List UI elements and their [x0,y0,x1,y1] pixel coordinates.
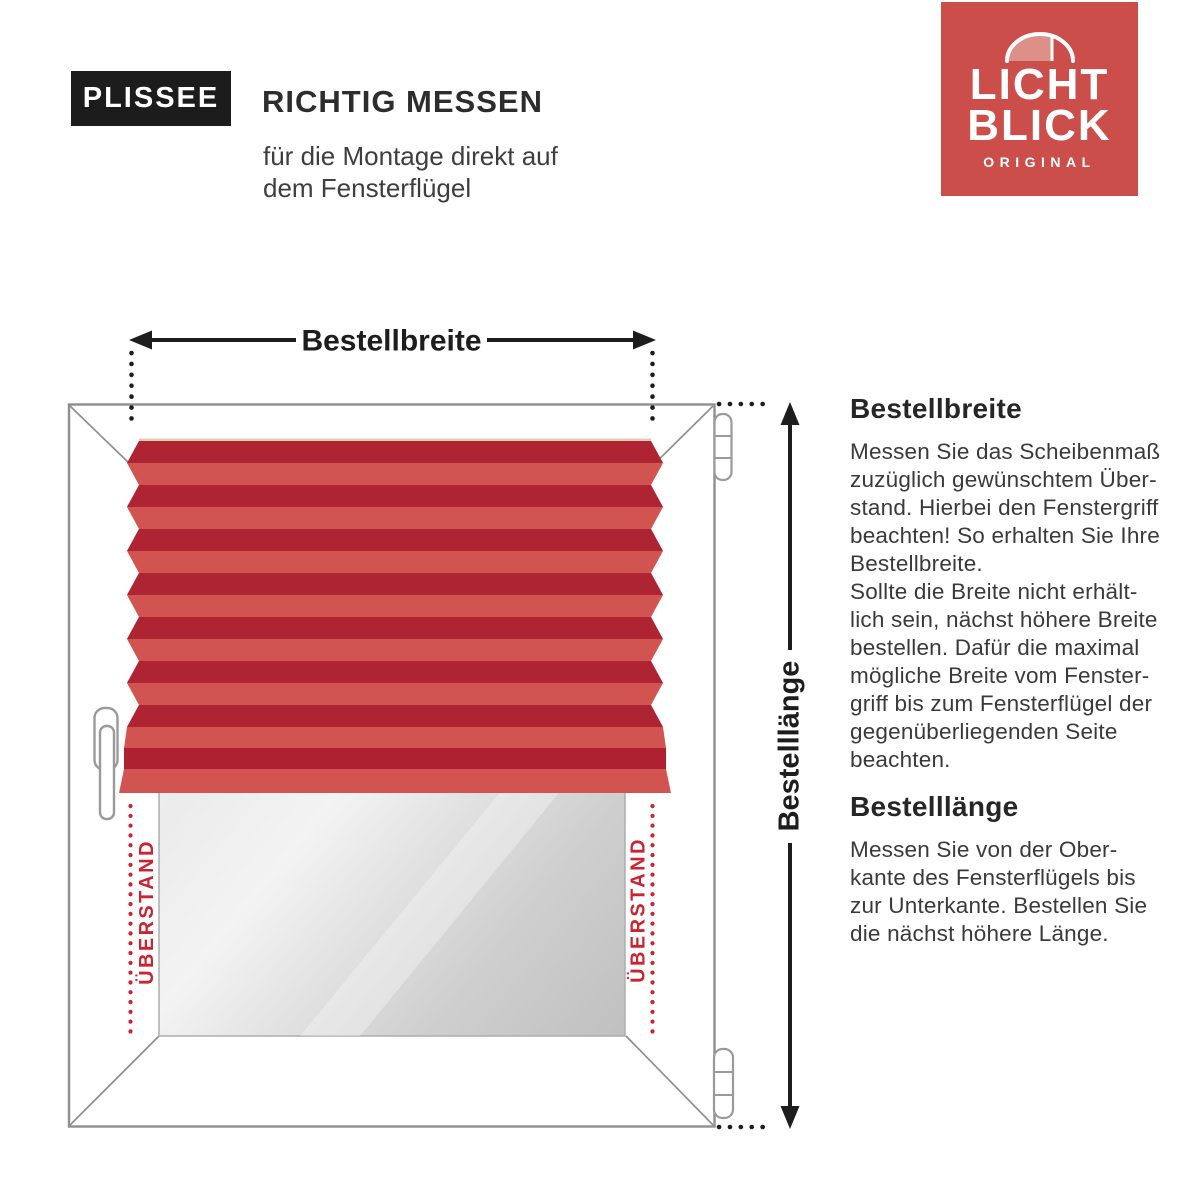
brand-word-licht: LICHT [970,64,1110,105]
page-subtitle-line: für die Montage direkt auf [263,140,558,172]
page-subtitle-line: dem Fensterflügel [263,172,558,204]
body-line: beachten. [850,746,1195,774]
window-hinge-bottom [714,1049,733,1118]
body-line: kante des Fensterflügels bis [850,864,1195,892]
page-title: RICHTIG MESSEN [262,84,543,120]
window-hinge-top [715,414,732,480]
overhang-label-left: ÜBERSTAND [135,839,158,985]
body-line: bestellen. Dafür die maximal [850,634,1195,662]
brand-tagline: ORIGINAL [983,154,1095,170]
body-line: zur Unterkante. Bestellen Sie [850,892,1195,920]
body-line: zuzüglich gewünschtem Über- [850,466,1195,494]
body-line: stand. Hierbei den Fenstergriff [850,494,1195,522]
body-line: Messen Sie das Scheibenmaß [850,438,1195,466]
body-line: die nächst höhere Länge. [850,920,1195,948]
section-heading: Bestelllänge [850,791,1195,823]
body-line: mögliche Breite vom Fenster- [850,662,1195,690]
awning-icon [1003,27,1077,64]
body-line: Messen Sie von der Ober- [850,836,1195,864]
product-badge: PLISSEE [71,71,231,126]
body-line: Sollte die Breite nicht erhält- [850,578,1195,606]
window-handle [95,708,118,819]
body-line: griff bis zum Fensterflügel der [850,690,1195,718]
page-subtitle: für die Montage direkt auf dem Fensterfl… [263,140,558,204]
body-line: Bestellbreite. [850,550,1195,578]
blind-bottom-rail [119,727,671,793]
body-line: lich sein, nächst höhere Breite [850,606,1195,634]
width-arrow-label: Bestellbreite [301,325,481,358]
blind-top-edge [139,439,651,442]
section-heading: Bestellbreite [850,393,1195,425]
length-arrow-label: Bestelllänge [774,661,806,832]
product-badge-label: PLISSEE [83,82,220,115]
body-line: beachten! So erhalten Sie Ihre [850,522,1195,550]
overhang-label-right: ÜBERSTAND [627,837,650,983]
brand-logo: LICHT BLICK ORIGINAL [941,2,1138,196]
window-measuring-diagram: ÜBERSTAND ÜBERSTAND Bestellbreite Bestel… [60,318,820,1148]
brand-word-blick: BLICK [967,105,1111,146]
instructions-column: Bestellbreite Messen Sie das Scheibenmaß… [850,393,1195,948]
measuring-guide-page: PLISSEE RICHTIG MESSEN für die Montage d… [0,0,1200,1200]
instructions-section-width: Bestellbreite Messen Sie das Scheibenmaß… [850,393,1195,774]
pleated-blind [112,439,678,794]
body-line: gegenüberliegenden Seite [850,718,1195,746]
instructions-section-length: Bestelllänge Messen Sie von der Ober- ka… [850,791,1195,948]
